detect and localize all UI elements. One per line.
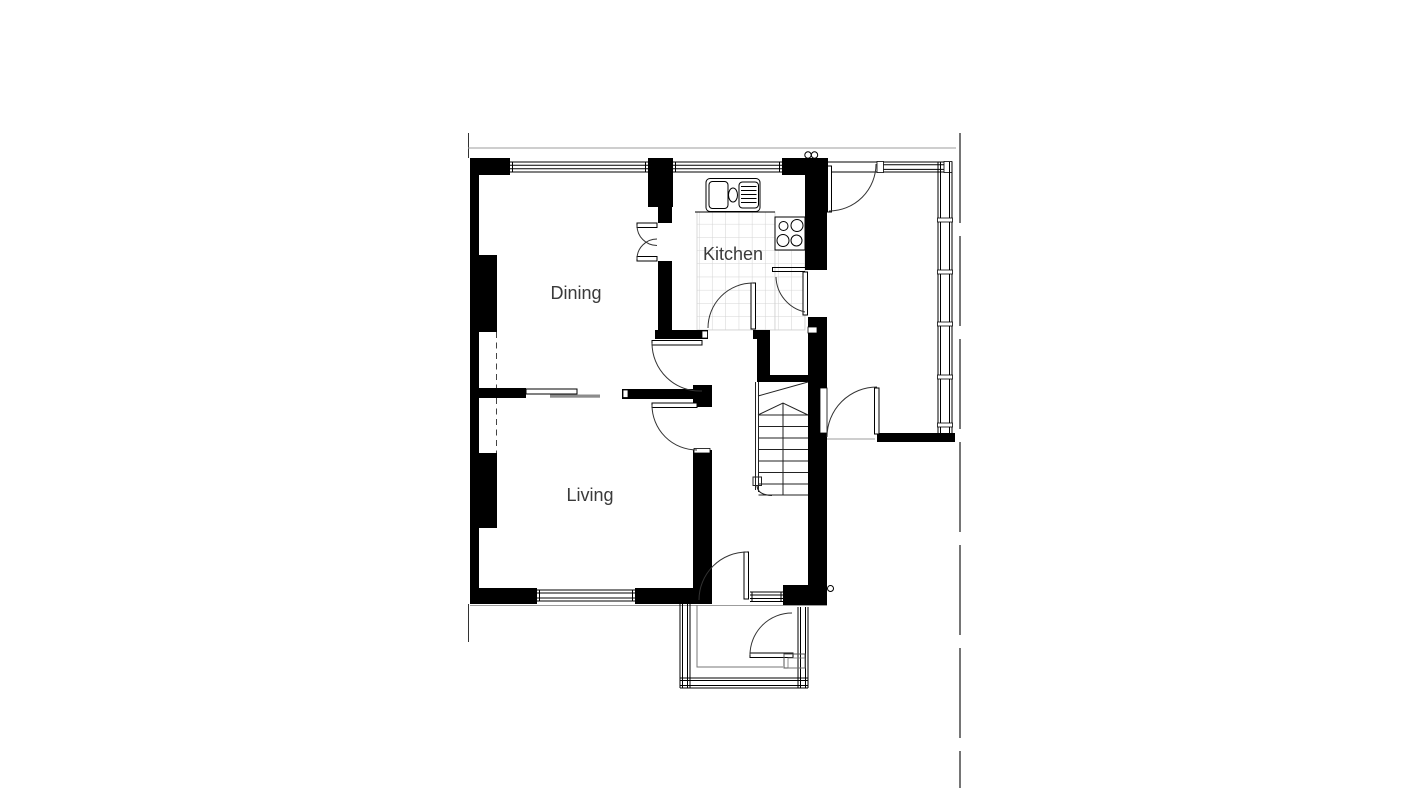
porch [680, 604, 808, 688]
living-east-wall-lower [693, 450, 712, 590]
cap-divider-wall [623, 390, 628, 398]
wall-top-pier [648, 158, 673, 207]
kitchen-label: Kitchen [703, 244, 763, 264]
window-conservatory-top [827, 162, 952, 173]
door-conservatory-top [828, 164, 877, 212]
window-living-south [537, 590, 635, 601]
dining-room-label: Dining [550, 283, 601, 303]
door-kitchen-bifold [637, 223, 657, 261]
stove-icon [775, 217, 805, 250]
door-sliding-divider [526, 389, 600, 398]
floor-plan-canvas: Dining Kitchen Living [0, 0, 1405, 790]
door-dining [652, 341, 702, 392]
porch-step-inner [788, 658, 805, 668]
window-front-sidelight [750, 592, 783, 602]
wall-left [470, 158, 479, 604]
door-conservatory-south [827, 387, 879, 439]
door-porch [750, 613, 793, 658]
cap-living-doorway [694, 449, 710, 454]
doorway-reveal-conservatory [820, 388, 827, 433]
sliding-door-track [550, 395, 600, 398]
kitchen-west-wall-lower [658, 261, 672, 330]
chimney-pier-lower [479, 453, 497, 528]
lobby-south-wall-west [655, 330, 708, 339]
wall-east-lower [808, 317, 827, 600]
living-room-label: Living [566, 485, 613, 505]
floor-plan: Dining Kitchen Living [0, 0, 1405, 790]
staircase [753, 382, 808, 496]
vent-symbol [805, 152, 818, 158]
cap-east-wall [808, 327, 817, 333]
wall-bottom-mid [635, 588, 712, 604]
stair-enclosure-horizontal [770, 375, 825, 382]
window-conservatory-right [938, 162, 953, 441]
cap-dining-doorway [702, 331, 708, 338]
kitchen-west-wall-stub [658, 207, 672, 223]
door-living [652, 403, 697, 450]
chimney-pier-upper [479, 255, 497, 332]
wall-bottom-left [470, 588, 537, 604]
sink-icon [706, 179, 760, 212]
wall-east-upper [805, 158, 827, 270]
corner-marker-circle [828, 586, 834, 592]
window-kitchen-north [673, 162, 782, 172]
stair-enclosure-vertical [757, 330, 770, 382]
divider-wall-west-stub [470, 388, 526, 398]
conservatory-south-wall [877, 433, 955, 442]
window-dining-north [510, 162, 648, 172]
